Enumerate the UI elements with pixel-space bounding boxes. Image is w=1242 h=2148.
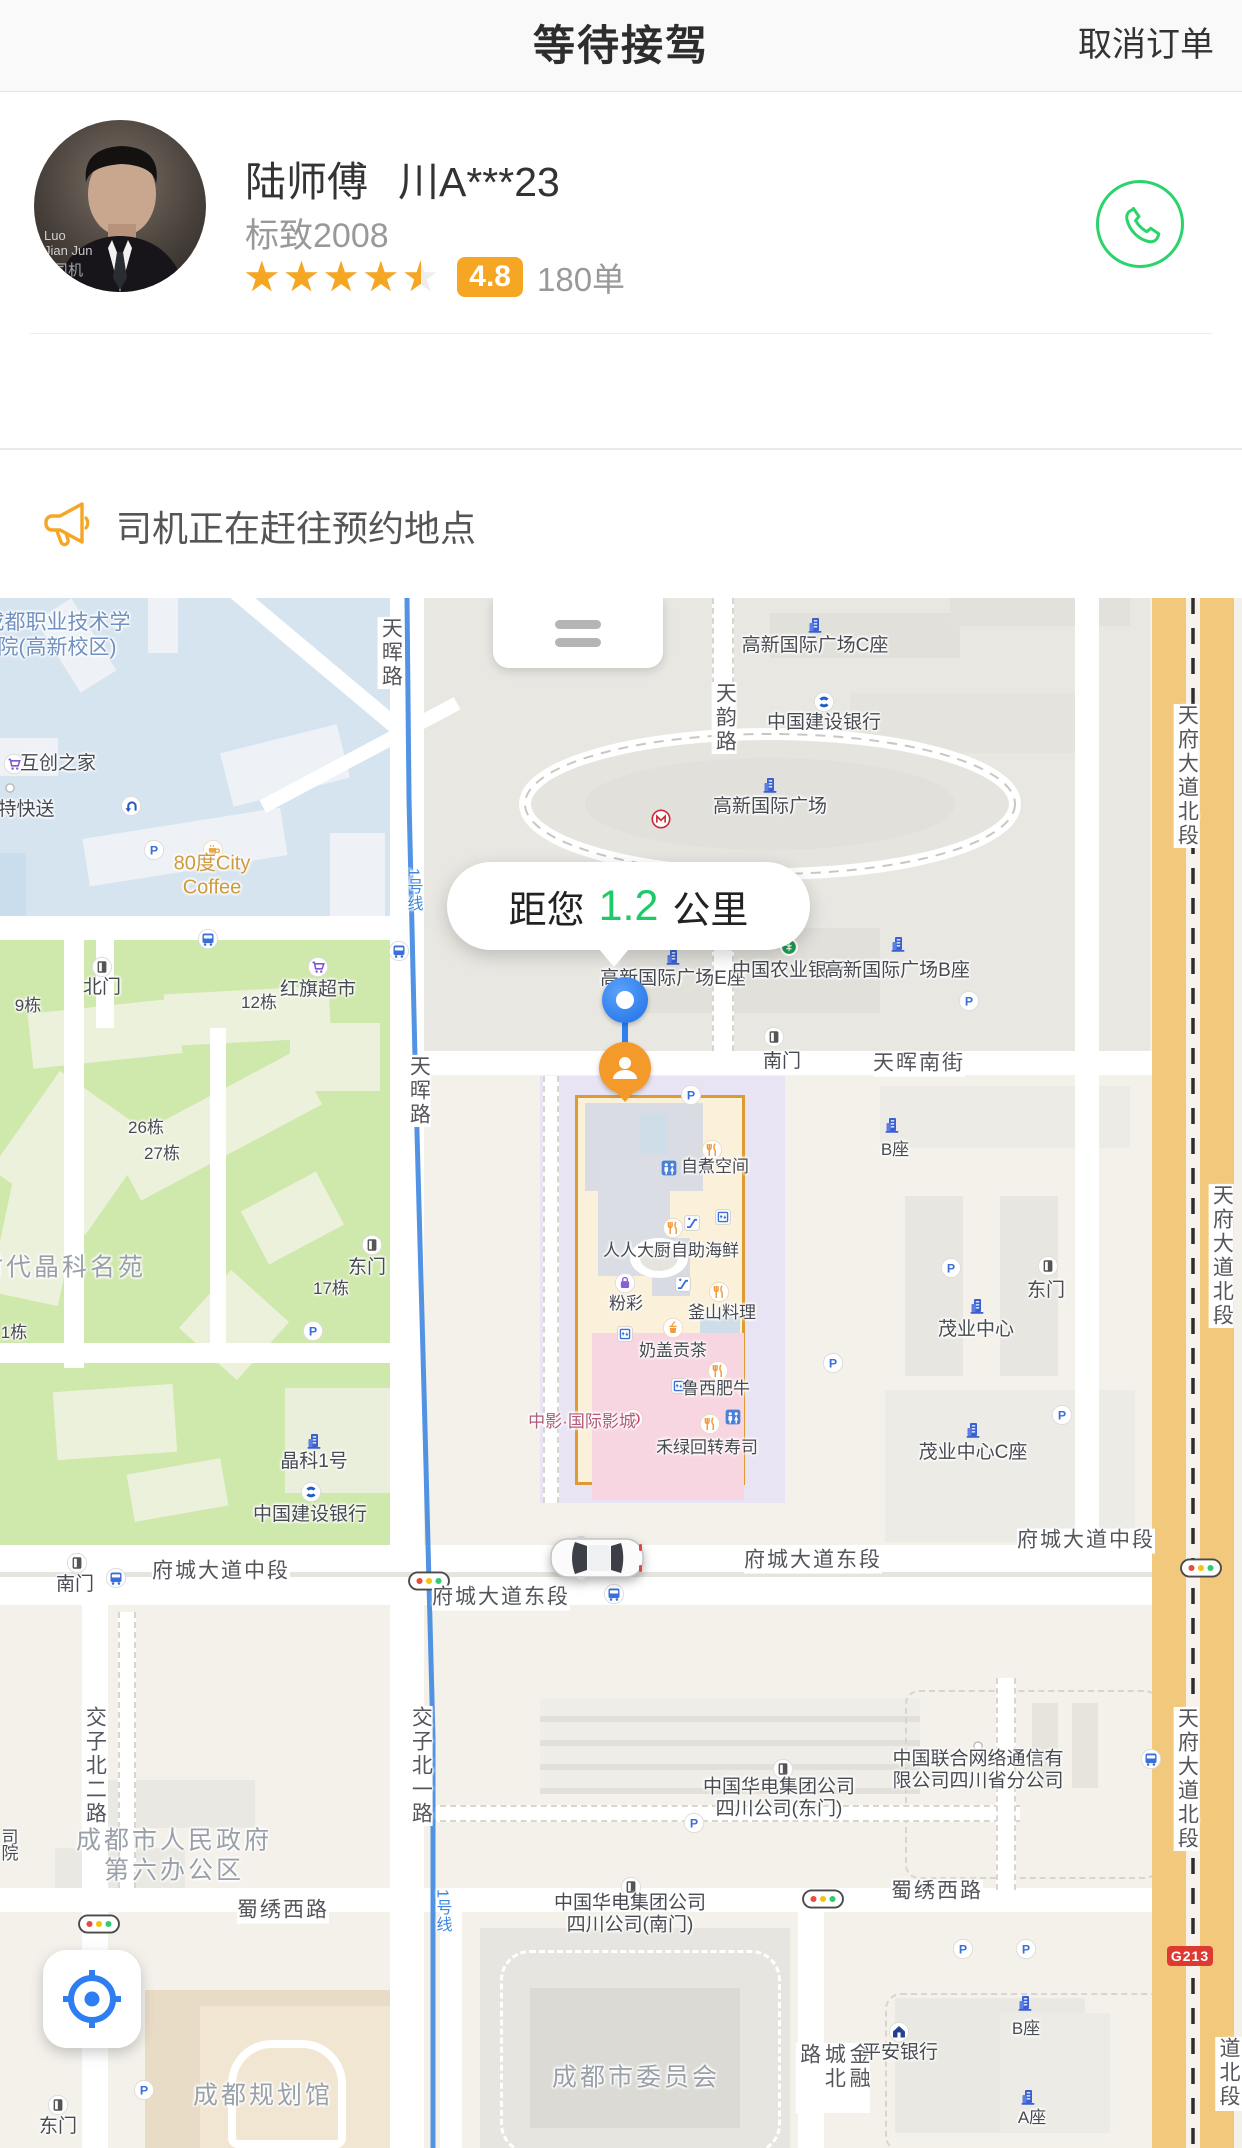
car-model: 标致2008 [245,208,389,257]
locate-target-icon [61,1968,123,2030]
map-label: 26栋 [128,1118,164,1138]
driver-name: 陆师傅 [245,159,368,205]
map-label: 府城大道东段 [432,1586,570,1611]
map-label: 时代晶科名苑 [0,1253,146,1283]
svg-text:P: P [959,1942,967,1956]
map-label: 天韵路 [712,682,737,754]
building [1072,1703,1098,1788]
driver-name-plate: 陆师傅川A***23 [245,148,560,208]
parking-icon: P [143,839,165,861]
building [85,1780,255,1828]
map-label: 红旗超市 [280,979,356,1001]
ccb-icon [300,1481,322,1503]
map-label: 天晖路 [406,1055,431,1127]
map-label: 人人大厨自助海鲜 [603,1241,739,1261]
road [64,938,84,1368]
map-label: 天府大道北段 [1215,2037,1242,2111]
parking-icon: P [302,1320,324,1342]
map-canvas[interactable]: PPPPPPPPPPP 成都职业技术学 院(高新校区)天晖路互创之家特快送80度… [0,598,1242,2148]
bldg-icon [886,932,910,956]
map-label: 蜀绣西路 [237,1899,329,1924]
svg-text:P: P [150,843,158,857]
fork-icon [708,1281,730,1303]
map-label: 鲁西肥牛 [682,1379,750,1399]
map-label: 1栋 [1,1323,27,1343]
building [53,1384,177,1460]
star-rating: ★★★★★★★★★★ [243,254,441,300]
road [440,1912,462,2148]
esc-icon [681,1212,703,1234]
parking-icon: P [822,1352,844,1374]
header-bar: 等待接驾 取消订单 [0,0,1242,92]
svg-text:P: P [140,2083,148,2097]
parking-icon: P [958,990,980,1012]
person-icon [608,1051,642,1085]
map-label: B座 [1012,2019,1040,2039]
map-label: 天府大道北段 [1174,1707,1199,1851]
map-label: 北门 [83,977,121,999]
destination-pin [602,977,648,1023]
bus-icon [1140,1748,1162,1770]
map-label: 1号线 [403,868,422,912]
phone-icon [1119,203,1161,245]
elv-icon [614,1323,636,1345]
map-label: 高新国际广场 [713,796,827,818]
svg-text:P: P [1058,1408,1066,1422]
building [530,1988,740,2128]
fork-icon [699,1413,721,1435]
map-label: 17栋 [313,1279,349,1299]
metro-icon [650,808,672,830]
parking-icon: P [1015,1938,1037,1960]
map-label: 南门 [763,1051,801,1073]
distance-bubble: 距您 1.2 公里 [447,862,810,950]
svg-text:P: P [947,1261,955,1275]
parking-icon: P [940,1257,962,1279]
panel-drag-handle[interactable] [493,598,663,668]
driver-card: Luo Jian Jun 安司机 陆师傅川A***23 标致2008 ★★★★★… [0,92,1242,448]
map-label: B座 [881,1140,909,1160]
bldg-icon [961,1418,985,1442]
map-label: 自煮空间 [681,1157,749,1177]
parking-icon: P [1051,1404,1073,1426]
map-label: 禾绿回转寿司 [656,1438,758,1458]
map-label: 成都市人民政府 第六办公区 [76,1827,272,1886]
drink-icon [662,1317,684,1339]
order-count: 180单 [537,253,625,301]
road-tianhui [390,598,424,2148]
map-label: 晶科1号 [280,1451,348,1473]
svg-text:P: P [690,1816,698,1830]
license-plate: 川A***23 [398,159,560,205]
svg-text:P: P [965,994,973,1008]
map-label: 天府大道北段 [1174,704,1199,848]
bubble-tail [599,949,629,967]
road [0,1343,392,1363]
tlight-icon [78,1915,120,1934]
map-label: 府城大道中段 [152,1560,290,1585]
bus-icon [388,940,410,962]
building [905,1196,963,1376]
bubble-prefix: 距您 [509,879,585,934]
map-label: 东门 [1027,1280,1065,1302]
map-label: 中影·国际影城 [528,1412,636,1432]
megaphone-icon [40,496,96,552]
bubble-distance: 1.2 [599,882,659,931]
bldg-icon [758,773,782,797]
map-label: 金融城北路 [796,2043,870,2113]
map-label: 中国建设银行 [253,1504,367,1526]
elv-icon [712,1206,734,1228]
map-label: 成都市委员会 [552,2063,720,2093]
map-label: 奶盖贡茶 [639,1341,707,1361]
drag-bar [555,620,601,629]
svg-text:P: P [309,1324,317,1338]
map-label: 天府大道北段 [1209,1184,1234,1328]
ccb-icon [813,691,835,713]
parking-icon: P [683,1812,705,1834]
door-icon [91,956,113,978]
page-title: 等待接驾 [0,0,1242,91]
app-screen: 等待接驾 取消订单 Luo Jian Jun 安司机 陆师傅川A***23 标致… [0,0,1242,2148]
bldg-icon [880,1113,904,1137]
tlight-icon [1180,1559,1222,1578]
map-label: 天晖路 [378,617,403,689]
rating-row: ★★★★★★★★★★ 4.8 180单 [243,254,625,300]
map-label: 成都职业技术学 院(高新校区) [0,611,131,661]
map-label: 院 [2,1844,19,1864]
building [950,598,1130,626]
road [543,1076,559,1503]
tlight-icon [802,1890,844,1909]
driver-car-marker [549,1534,645,1582]
parking-icon: P [133,2079,155,2101]
door-icon [66,1552,88,1574]
map-label: 中国联合网络通信有 限公司四川省分公司 [892,1749,1063,1794]
notice-text: 司机正在赶往预约地点 [116,500,476,552]
map-label: 成都规划馆 [193,2081,333,2111]
wc-icon [722,1406,744,1428]
dot-icon [0,777,21,799]
bldg-icon [302,1429,326,1453]
map-label: 茂业中心C座 [919,1442,1028,1464]
svg-text:P: P [829,1356,837,1370]
bldg-icon [965,1294,989,1318]
map-label: 东门 [39,2116,77,2138]
map-label: 中国建设银行 [767,712,881,734]
building [148,598,178,653]
divider [30,333,1212,334]
building [850,693,1080,753]
parking-icon: P [952,1938,974,1960]
map-label: 互创之家 [20,753,96,775]
cancel-order-button[interactable]: 取消订单 [1078,0,1214,91]
highway-badge: G213 [1167,1946,1213,1966]
door-icon [361,1234,383,1256]
map-label: 1号线 [432,1889,451,1933]
map-label: 平安银行 [862,2042,938,2064]
door-icon [1037,1255,1059,1277]
drag-bar [555,638,601,647]
map-label: 南门 [56,1574,94,1596]
map-label: 府城大道东段 [744,1549,882,1574]
map-label: 粉彩 [609,1294,643,1314]
door-icon [47,2094,69,2116]
campus-area [0,853,26,918]
map-label: 9栋 [15,996,41,1016]
avatar-watermark: Luo Jian Jun [44,228,92,258]
road [210,1028,226,1343]
bldg-icon [1013,1991,1037,2015]
building [330,833,385,918]
rating-badge: 4.8 [457,257,523,297]
map-label: 中国华电集团公司 四川公司(南门) [554,1893,706,1938]
map-label: 天晖南街 [873,1052,965,1077]
uturn-icon [120,795,142,817]
map-label: 府城大道中段 [1017,1529,1155,1554]
bldg-icon [1016,2085,1040,2109]
map-label: 东门 [348,1257,386,1279]
passenger-marker [599,1042,651,1094]
map-label: 茂业中心 [938,1319,1014,1341]
bubble-unit: 公里 [672,879,748,934]
cart-icon [307,956,329,978]
svg-text:P: P [687,1088,695,1102]
map-label: 蜀绣西路 [891,1880,983,1905]
tianfu-avenue [1200,598,1234,2148]
notice-row: 司机正在赶往预约地点 [0,448,1242,600]
bldg-icon [803,613,827,637]
map-label: A座 [1018,2108,1046,2128]
esc-icon [672,1273,694,1295]
map-label: 12栋 [241,993,277,1013]
wc-icon [658,1157,680,1179]
map-label: 中国华电集团公司 四川公司(东门) [703,1777,855,1822]
bus-icon [105,1567,127,1589]
map-label: 高新国际广场B座 [824,960,970,982]
map-label: 交子北二路 [82,1706,107,1826]
driver-avatar: Luo Jian Jun 安司机 [34,120,206,292]
avatar-watermark-2: 安司机 [38,259,83,280]
parking-icon: P [680,1084,702,1106]
bag-icon [614,1272,636,1294]
building [640,1114,668,1154]
bus-icon [197,928,219,950]
locate-me-button[interactable] [43,1950,141,2048]
map-label: 交子北一路 [408,1706,433,1826]
map-label: 80度City Coffee [174,852,251,899]
pingan-icon [888,2021,910,2043]
map-label: 27栋 [144,1144,180,1164]
map-label: 特快送 [0,799,55,821]
map-label: 釜山料理 [688,1303,756,1323]
map-label: 高新国际广场C座 [742,635,889,657]
bus-icon [603,1583,625,1605]
svg-text:P: P [1022,1942,1030,1956]
call-driver-button[interactable] [1096,180,1184,268]
door-icon [763,1026,785,1048]
